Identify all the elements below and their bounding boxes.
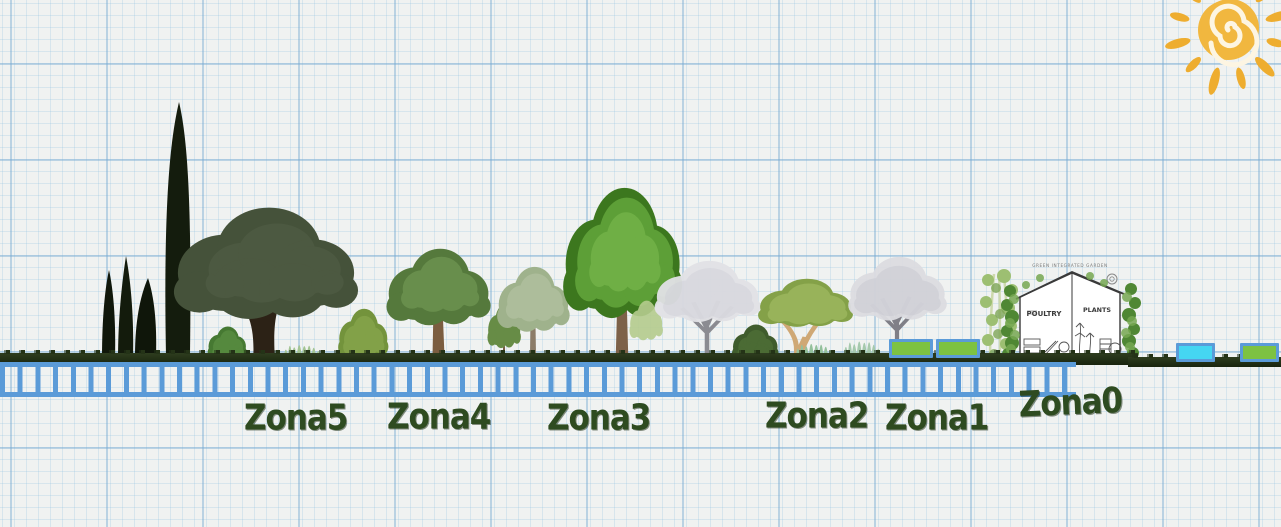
zone-label-zona4: Zona4: [387, 400, 490, 435]
raised-bed-green: [889, 339, 933, 358]
zone-label-zona0: Zona0: [1018, 383, 1123, 423]
zone-label-zona5: Zona5: [244, 401, 347, 436]
oak-tree: [166, 206, 364, 360]
greenhouse-house: GREEN INTEGRATED GARDEN POULTRY PLANTS: [1000, 261, 1140, 358]
raised-bed-green: [1240, 343, 1279, 362]
ladder-scale: [0, 362, 1076, 397]
zone-label-zona3: Zona3: [547, 401, 650, 436]
house-caption: GREEN INTEGRATED GARDEN: [1032, 263, 1108, 268]
raised-bed-green: [936, 339, 980, 358]
deciduous-tree: [382, 246, 494, 362]
diagram-canvas: GREEN INTEGRATED GARDEN POULTRY PLANTS: [0, 0, 1281, 527]
raised-bed-water: [1176, 343, 1215, 362]
house-room-right-label: PLANTS: [1083, 306, 1111, 314]
zone-label-zona1: Zona1: [885, 401, 988, 436]
sun-spiral-icon: [1166, 0, 1281, 102]
zone-label-zona2: Zona2: [765, 399, 868, 434]
